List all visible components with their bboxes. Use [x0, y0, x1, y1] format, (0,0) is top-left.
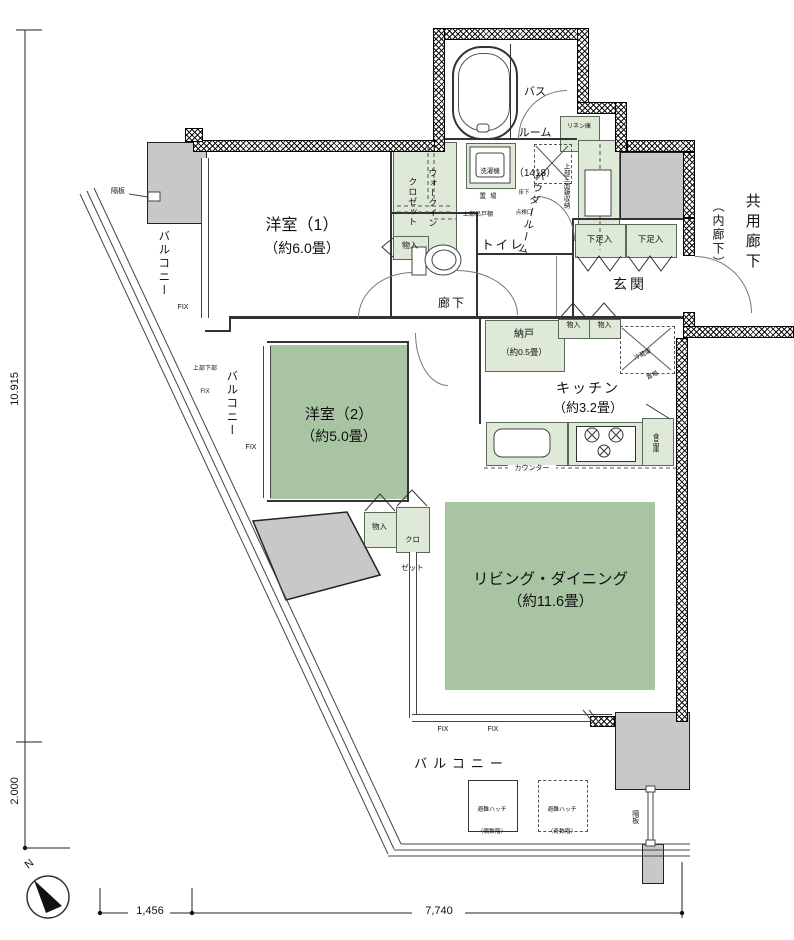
label-balcony-left-mid: バルコニー — [224, 356, 238, 452]
compass-icon — [27, 876, 69, 918]
window-living-south — [412, 714, 612, 722]
dimension-height-lower: 2.000 — [9, 761, 23, 821]
slab-bottom-right — [615, 712, 690, 790]
slab-middle-parallelogram — [253, 512, 380, 600]
label-wic-line1: ウォークイン — [426, 148, 437, 248]
wall-bottom-stub — [590, 716, 615, 727]
wall-entrance-north — [572, 218, 684, 220]
label-kitchen-size: （約3.2畳） — [540, 400, 636, 416]
door-arc-western2 — [415, 333, 448, 386]
label-storage-entrance-1: 物入 — [559, 322, 588, 331]
label-fix-western1: FIX — [172, 304, 194, 313]
label-shared-corridor: 共用廊下 — [742, 158, 761, 308]
wall-main-horizontal — [230, 316, 685, 319]
label-fix-living-2: FIX — [482, 726, 504, 735]
label-closet-western2: クロ ゼット — [397, 516, 428, 591]
label-western2-name: 洋室（2） — [272, 406, 406, 425]
label-western2-size: （約5.0畳） — [272, 428, 406, 446]
wall-western2-east — [407, 341, 409, 502]
wall-right-mid — [683, 218, 695, 256]
wall-top-right — [627, 140, 695, 152]
dimension-width-right: 7,740 — [413, 905, 465, 919]
label-storeroom-size: （約0.5畳） — [490, 347, 558, 358]
wall-step-v — [615, 102, 627, 152]
wall-corridor-bottom — [683, 326, 794, 338]
label-storage-toilet: 物入 — [394, 241, 426, 251]
wall-step-small-h — [205, 330, 230, 332]
label-hatch-odd: 避難ハッチ （奇数階） — [539, 793, 585, 851]
label-shoe-box-1: 下足入 — [577, 234, 622, 245]
entrance-step-line — [556, 256, 557, 316]
label-storage-western2: 物入 — [364, 522, 395, 531]
label-partition-top-left: 隔板 — [106, 188, 130, 197]
stove-top — [576, 426, 636, 462]
label-partition-bottom-right: 隔板 — [630, 802, 639, 832]
wall-topleft-stub — [185, 128, 203, 142]
wall-right-upper — [683, 152, 695, 218]
label-fix-upper-lower: 上部下部 FIX — [186, 351, 224, 411]
compass-north-label: N — [18, 853, 42, 876]
label-shoe-box-2: 下足入 — [628, 234, 673, 245]
label-storeroom-name: 納戸 — [503, 329, 545, 342]
label-counter: カウンター — [508, 465, 556, 474]
wall-bath-left — [433, 28, 445, 152]
label-pantry: 食品庫 — [650, 424, 658, 462]
label-western1-name: 洋室（1） — [222, 216, 382, 236]
label-living-size: （約11.6畳） — [448, 593, 653, 611]
wall-main-top — [193, 140, 435, 152]
wall-western2-north — [267, 341, 409, 343]
wall-western2-south — [267, 500, 409, 502]
label-upper-cabinet: 上部吊戸棚 — [456, 212, 500, 220]
label-balcony-bottom: バルコニー — [404, 756, 519, 772]
window-western1-west — [201, 158, 209, 318]
door-arc-western1 — [358, 272, 413, 318]
label-fix-western2: FIX — [240, 444, 262, 453]
label-storage-entrance-2: 物入 — [590, 322, 619, 331]
label-mirror-cabinet: 上部三面鏡収納 — [561, 146, 569, 226]
dimension-width-left: 1,456 — [128, 905, 172, 919]
label-balcony-left-top: バルコニー — [156, 218, 170, 310]
slab-top-left — [147, 142, 207, 224]
label-washer: 洗濯機 置場 — [467, 152, 513, 217]
label-hatch-even: 避難ハッチ （偶数階） — [469, 793, 515, 851]
label-toilet: トイレ — [477, 238, 529, 254]
wall-bath-top — [433, 28, 589, 40]
dimension-height-upper: 10.915 — [9, 359, 23, 419]
label-linen: リネン庫 — [561, 124, 597, 132]
label-western1-size: （約6.0畳） — [222, 240, 382, 258]
kitchen-sink-unit — [486, 422, 568, 466]
label-shared-corridor-sub: （内廊下） — [710, 160, 725, 310]
floor-plan: バス ルーム （1418） 洋室（1） （約6.0畳） ウォークイン クロゼット… — [0, 0, 794, 940]
slab-balcony-edge — [642, 844, 664, 884]
label-living-name: リビング・ダイニング — [448, 570, 653, 589]
label-inspection: 床下 点検口 — [512, 176, 536, 231]
wall-right-main — [676, 338, 688, 722]
meter-box-top-right — [620, 152, 685, 220]
storeroom-area — [485, 320, 565, 372]
wall-kitchen-west — [479, 318, 481, 424]
label-kitchen-name: キッチン — [543, 380, 633, 398]
label-entrance: 玄関 — [600, 276, 660, 294]
label-hallway: 廊下 — [428, 296, 476, 311]
label-wic-line2: クロゼット — [406, 154, 417, 249]
label-fix-living-1: FIX — [432, 726, 454, 735]
window-western2-west — [263, 346, 271, 498]
